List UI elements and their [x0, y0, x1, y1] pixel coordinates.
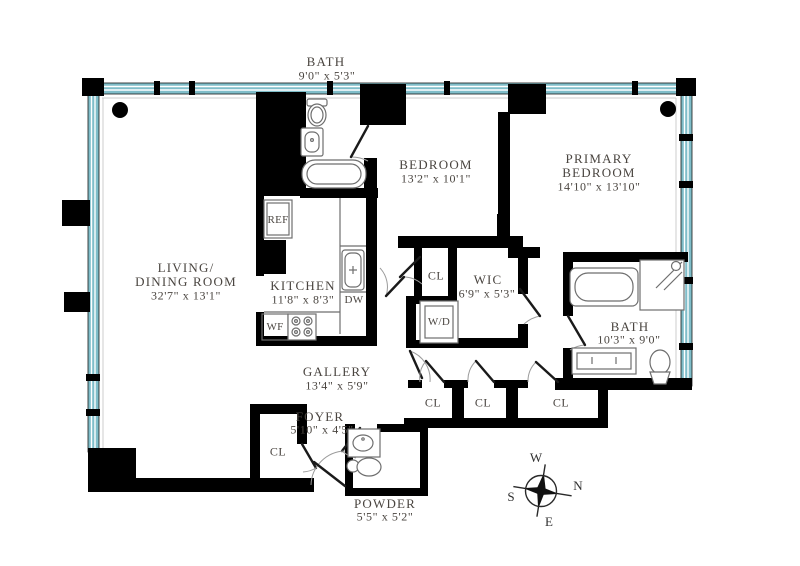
compass-south-label: S [507, 489, 514, 505]
toilet-icon [307, 99, 327, 126]
primary-toilet-icon [650, 350, 670, 384]
washer-dryer-label: W/D [428, 316, 450, 328]
primary-bath-dims: 10'3" x 9'0" [597, 333, 660, 348]
wine-fridge-label: WF [266, 321, 283, 333]
floor-plan-drawing [0, 0, 800, 566]
foyer-dims: 5'10" x 4'5" [290, 423, 353, 438]
closet-label-foyer: CL [270, 445, 286, 460]
gallery-dims: 13'4" x 5'9" [305, 379, 368, 394]
vanity-icon [572, 348, 636, 374]
floor-plan: BATH 9'0" x 5'3" BEDROOM 13'2" x 10'1" P… [0, 0, 800, 566]
compass-north-label: N [573, 478, 582, 494]
bedroom-dims: 13'2" x 10'1" [401, 172, 471, 187]
compass-west-label: W [530, 450, 542, 466]
closet-label-row3: CL [553, 396, 569, 411]
kitchen-dims: 11'8" x 8'3" [272, 293, 335, 308]
living-dining-dims: 32'7" x 13'1" [151, 289, 221, 304]
dishwasher-label: DW [345, 294, 364, 306]
closet-label-row2: CL [475, 396, 491, 411]
refrigerator-label: REF [267, 214, 288, 226]
closet-label-hall: CL [428, 269, 444, 284]
compass-east-label: E [545, 514, 553, 530]
powder-dims: 5'5" x 5'2" [357, 510, 414, 525]
compass-rose [509, 460, 576, 522]
bath-top-dims: 9'0" x 5'3" [299, 69, 356, 84]
closet-label-row1: CL [425, 396, 441, 411]
wic-dims: 6'9" x 5'3" [459, 287, 516, 302]
primary-bedroom-dims: 14'10" x 13'10" [557, 180, 640, 195]
kitchen-sink-icon [342, 250, 364, 290]
stove-icon [288, 314, 316, 340]
primary-bathtub-icon [570, 268, 638, 306]
sink-icon [301, 128, 323, 156]
bathtub-icon [302, 160, 366, 188]
shower-icon [640, 260, 684, 310]
